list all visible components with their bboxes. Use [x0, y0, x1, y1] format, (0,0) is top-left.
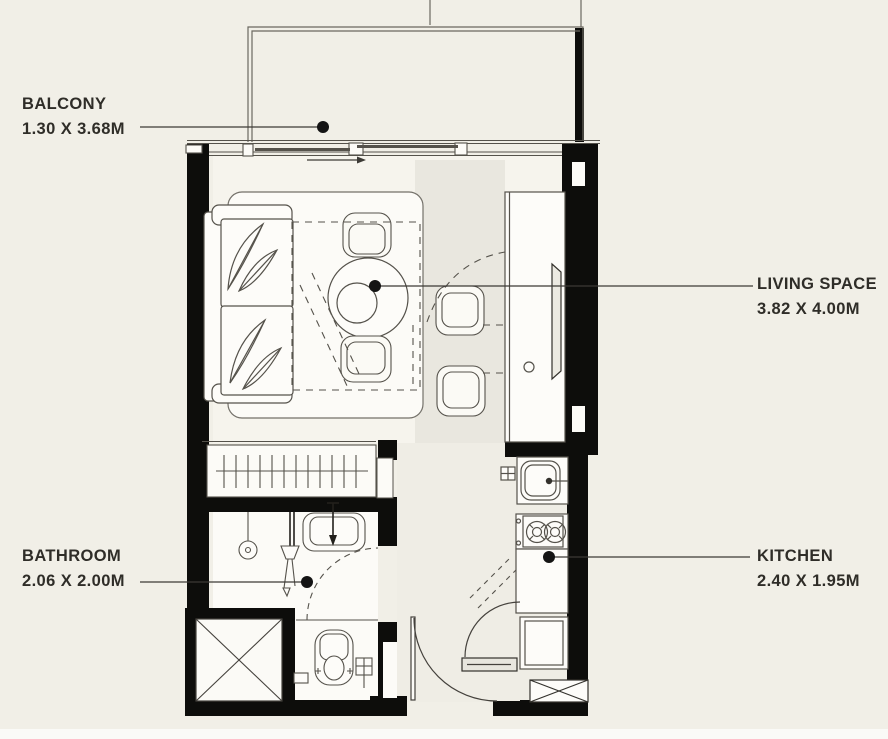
- living-leader-dot: [369, 280, 381, 292]
- bathroom-label: BATHROOM 2.06 X 2.00M: [22, 544, 125, 594]
- shoe-cabinet-cross: [530, 680, 588, 702]
- balcony-name: BALCONY: [22, 92, 125, 117]
- toilet-icon: [315, 630, 353, 685]
- kitchen-cabinet: [520, 617, 568, 669]
- floor-plan: BALCONY 1.30 X 3.68M LIVING SPACE 3.82 X…: [0, 0, 888, 739]
- kitchen-counter: [516, 549, 568, 613]
- cooktop-icon: [516, 514, 568, 549]
- kitchen-leader-dot: [543, 551, 555, 563]
- balcony-dimensions: 1.30 X 3.68M: [22, 117, 125, 142]
- bottom-edge-strip: [0, 729, 888, 739]
- sliding-window: [186, 141, 600, 157]
- balcony-leader-dot: [317, 121, 329, 133]
- kitchen-label: KITCHEN 2.40 X 1.95M: [757, 544, 860, 594]
- dining-table-icon: [328, 258, 408, 338]
- wardrobe-icon: [202, 442, 376, 498]
- chair-icon: [343, 213, 391, 257]
- chair-icon: [436, 286, 484, 335]
- floor-plan-drawing: [0, 0, 888, 739]
- bathroom-dimensions: 2.06 X 2.00M: [22, 569, 125, 594]
- living-space-label: LIVING SPACE 3.82 X 4.00M: [757, 272, 877, 322]
- living-space-dimensions: 3.82 X 4.00M: [757, 297, 877, 322]
- kitchen-name: KITCHEN: [757, 544, 860, 569]
- chair-icon: [437, 366, 485, 416]
- sofa-icon: [204, 205, 293, 403]
- chair-icon: [341, 336, 391, 382]
- bathroom-leader-dot: [301, 576, 313, 588]
- bathroom-name: BATHROOM: [22, 544, 125, 569]
- shaft-cross: [196, 619, 282, 701]
- balcony-label: BALCONY 1.30 X 3.68M: [22, 92, 125, 142]
- kitchen-dimensions: 2.40 X 1.95M: [757, 569, 860, 594]
- balcony-railing: [248, 0, 583, 142]
- living-space-name: LIVING SPACE: [757, 272, 877, 297]
- tv-panel-icon: [552, 264, 561, 379]
